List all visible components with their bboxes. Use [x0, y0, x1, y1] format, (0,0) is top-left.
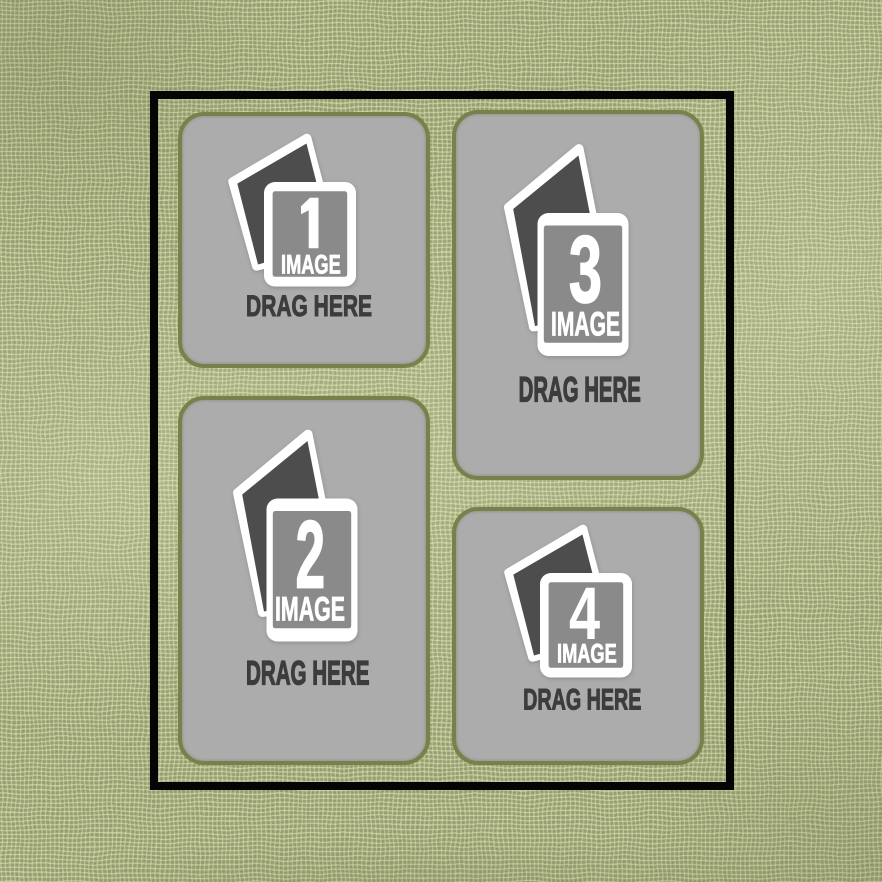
svg-text:IMAGE: IMAGE	[275, 590, 345, 628]
svg-text:IMAGE: IMAGE	[551, 305, 620, 344]
svg-text:DRAG HERE: DRAG HERE	[246, 291, 372, 323]
svg-text:DRAG HERE: DRAG HERE	[246, 653, 369, 692]
svg-text:IMAGE: IMAGE	[281, 249, 341, 279]
svg-text:IMAGE: IMAGE	[557, 638, 617, 668]
svg-text:DRAG HERE: DRAG HERE	[519, 371, 641, 410]
svg-text:DRAG HERE: DRAG HERE	[523, 684, 641, 717]
